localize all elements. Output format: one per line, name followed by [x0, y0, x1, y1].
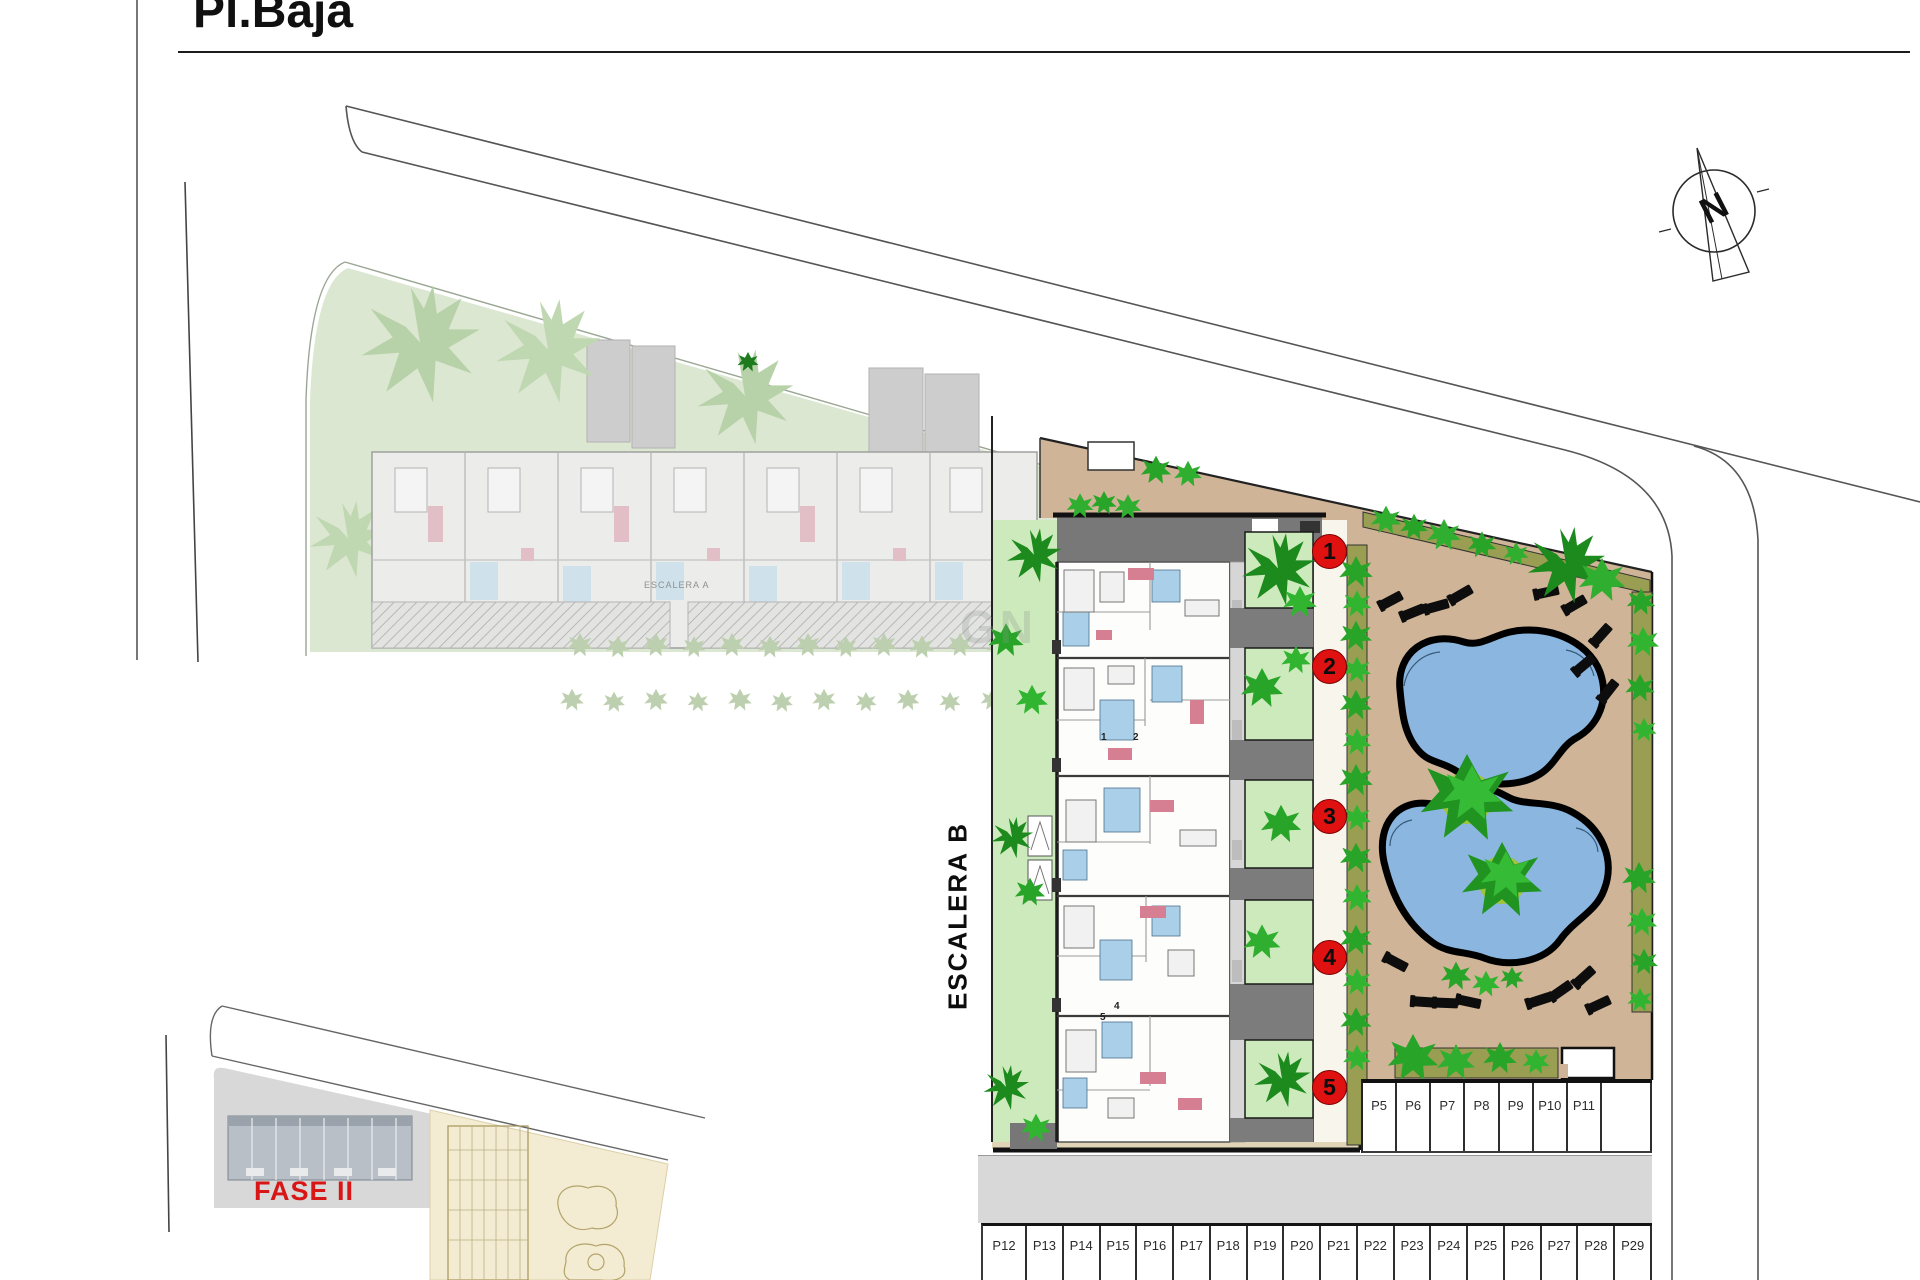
parking-stall: P24: [1431, 1226, 1468, 1280]
parking-stall: P7: [1431, 1083, 1465, 1151]
room-number: 4: [1114, 1001, 1120, 1012]
parking-row-east: P5 P6 P7 P8 P9 P10 P11: [1361, 1079, 1652, 1153]
parking-stall: P22: [1358, 1226, 1395, 1280]
unit-marker-1: 1: [1312, 534, 1347, 569]
parking-stall: P16: [1137, 1226, 1174, 1280]
parking-stall: P9: [1500, 1083, 1534, 1151]
parking-stall: P17: [1174, 1226, 1211, 1280]
parking-stall-empty: [1602, 1083, 1652, 1151]
room-number: 1: [1101, 732, 1107, 743]
parking-stall: P15: [1101, 1226, 1138, 1280]
parking-stall: P28: [1578, 1226, 1615, 1280]
parking-stall: P12: [983, 1226, 1027, 1280]
parking-stall: P26: [1505, 1226, 1542, 1280]
parking-stall: P19: [1248, 1226, 1285, 1280]
room-number: 2: [1133, 732, 1139, 743]
parking-stall: P20: [1284, 1226, 1321, 1280]
parking-stall: P27: [1542, 1226, 1579, 1280]
parking-stall: P21: [1321, 1226, 1358, 1280]
keymap: [210, 1006, 705, 1280]
parking-stall: P23: [1395, 1226, 1432, 1280]
parking-stall: P8: [1465, 1083, 1499, 1151]
site-plan-canvas: Pl.Baja GN ESCALERA A ESCALERA B FASE II…: [0, 0, 1920, 1280]
building-b-site: [984, 416, 1659, 1150]
room-number: 5: [1100, 1012, 1106, 1023]
parking-stall: P6: [1397, 1083, 1431, 1151]
parking-stall: P13: [1027, 1226, 1064, 1280]
parking-stall: P5: [1363, 1083, 1397, 1151]
watermark: GN: [960, 600, 1037, 654]
access-road: [978, 1155, 1652, 1223]
parking-stall: P14: [1064, 1226, 1101, 1280]
title-divider: [178, 51, 1910, 53]
page-title: Pl.Baja: [193, 0, 353, 39]
fase2-label: FASE II: [254, 1176, 354, 1207]
unit-marker-4: 4: [1312, 940, 1347, 975]
parking-stall: P18: [1211, 1226, 1248, 1280]
unit-marker-3: 3: [1312, 799, 1347, 834]
parking-stall: P29: [1615, 1226, 1652, 1280]
unit-marker-2: 2: [1312, 649, 1347, 684]
escalera-a-label: ESCALERA A: [644, 580, 710, 590]
escalera-b-label: ESCALERA B: [943, 822, 974, 1010]
unit-marker-5: 5: [1312, 1070, 1347, 1105]
parking-row-south: P12 P13 P14 P15 P16 P17 P18 P19 P20 P21 …: [981, 1223, 1652, 1280]
parking-stall: P11: [1568, 1083, 1602, 1151]
parking-stall: P10: [1534, 1083, 1568, 1151]
parking-stall: P25: [1468, 1226, 1505, 1280]
